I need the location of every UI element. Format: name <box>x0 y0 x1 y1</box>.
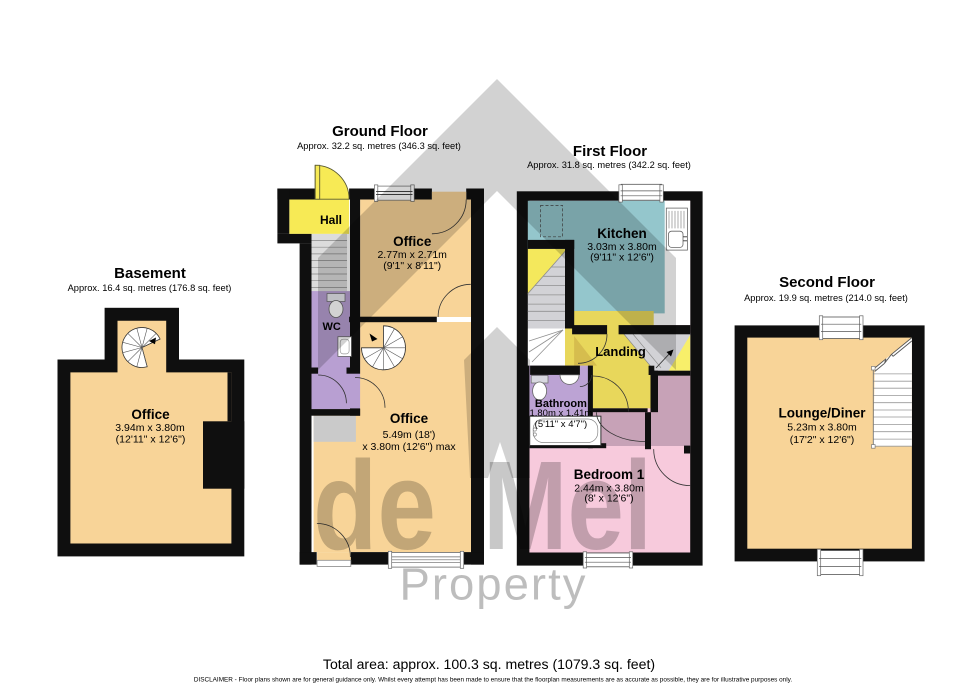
svg-text:Basement: Basement <box>114 265 186 282</box>
svg-text:Landing: Landing <box>595 344 646 359</box>
svg-text:Second Floor: Second Floor <box>779 274 875 291</box>
svg-text:Office: Office <box>131 407 170 422</box>
svg-text:Office: Office <box>390 411 429 426</box>
svg-text:Ground Floor: Ground Floor <box>332 123 428 140</box>
svg-text:5.23m x 3.80m: 5.23m x 3.80m <box>787 422 857 434</box>
svg-text:Hall: Hall <box>320 213 342 227</box>
svg-text:Approx. 16.4 sq. metres (176.8: Approx. 16.4 sq. metres (176.8 sq. feet) <box>68 283 232 293</box>
svg-text:DISCLAIMER - Floor plans show: DISCLAIMER - Floor plans shown are for g… <box>194 677 793 684</box>
svg-text:Property: Property <box>400 559 588 610</box>
svg-text:Mel: Mel <box>483 435 652 576</box>
svg-text:Lounge/Diner: Lounge/Diner <box>779 406 867 421</box>
svg-text:(12'11" x 12'6"): (12'11" x 12'6") <box>116 434 186 446</box>
svg-text:Total area: approx. 100.3 sq.: Total area: approx. 100.3 sq. metres (10… <box>323 656 655 672</box>
svg-text:de: de <box>313 435 436 576</box>
svg-text:(5'11" x 4'7"): (5'11" x 4'7") <box>535 419 587 430</box>
svg-text:1.80m x 1.41m: 1.80m x 1.41m <box>529 408 592 419</box>
svg-text:First Floor: First Floor <box>573 143 647 160</box>
svg-text:(17'2" x 12'6"): (17'2" x 12'6") <box>790 434 855 446</box>
svg-text:Approx. 19.9 sq. metres (214.0: Approx. 19.9 sq. metres (214.0 sq. feet) <box>744 293 908 303</box>
svg-text:3.94m x 3.80m: 3.94m x 3.80m <box>115 422 185 434</box>
